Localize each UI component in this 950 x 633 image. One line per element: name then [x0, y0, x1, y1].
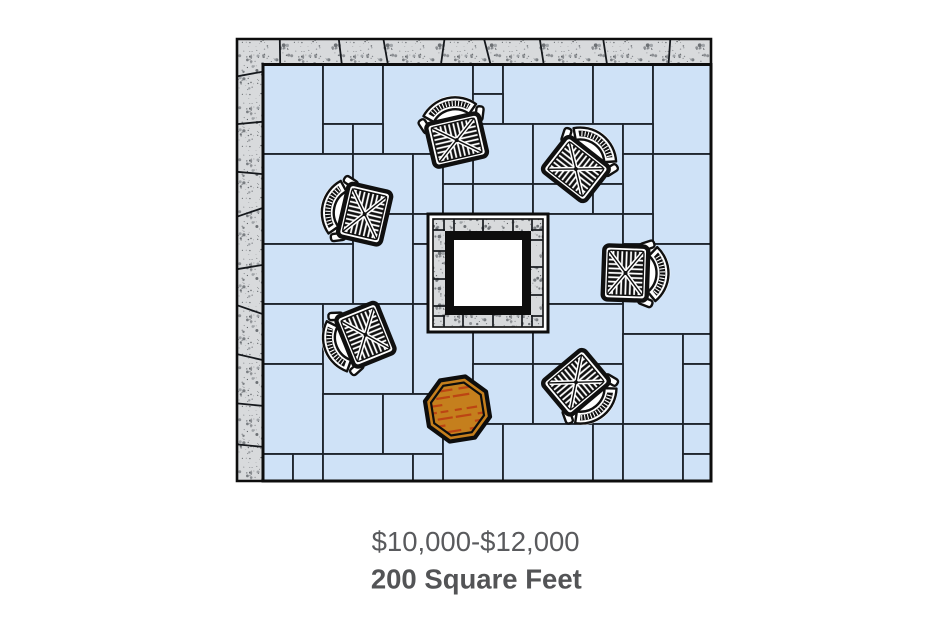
svg-text:$10,000-$12,000: $10,000-$12,000 — [372, 526, 580, 557]
svg-text:200 Square Feet: 200 Square Feet — [371, 564, 582, 595]
